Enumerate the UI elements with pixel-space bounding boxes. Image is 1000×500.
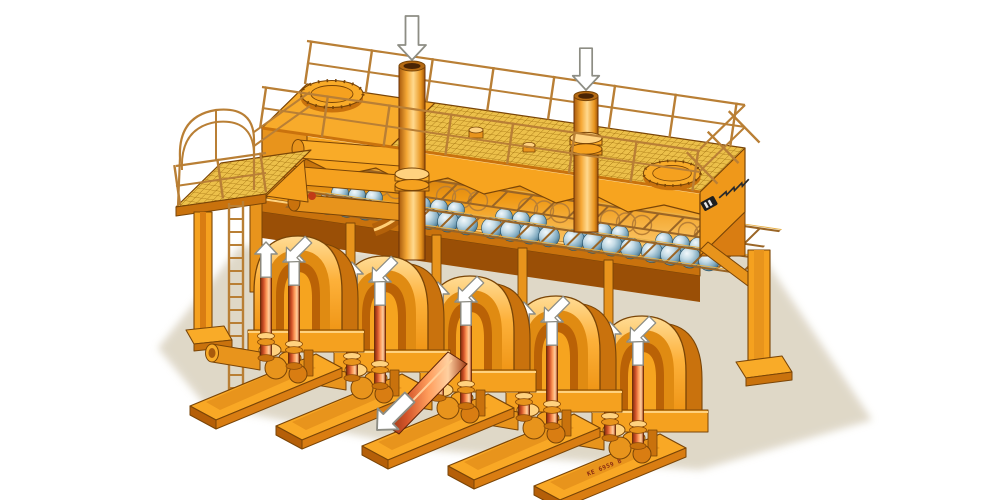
valve-detail [308, 192, 316, 200]
inlet-pipe [395, 61, 429, 260]
deck-stub [469, 127, 483, 138]
inlet-flow-arrow [398, 16, 426, 60]
technical-illustration: KE 6959 B [0, 0, 1000, 500]
pump-station-cutaway-illustration: KE 6959 B [0, 0, 1000, 500]
inlet-pipe [570, 91, 602, 232]
